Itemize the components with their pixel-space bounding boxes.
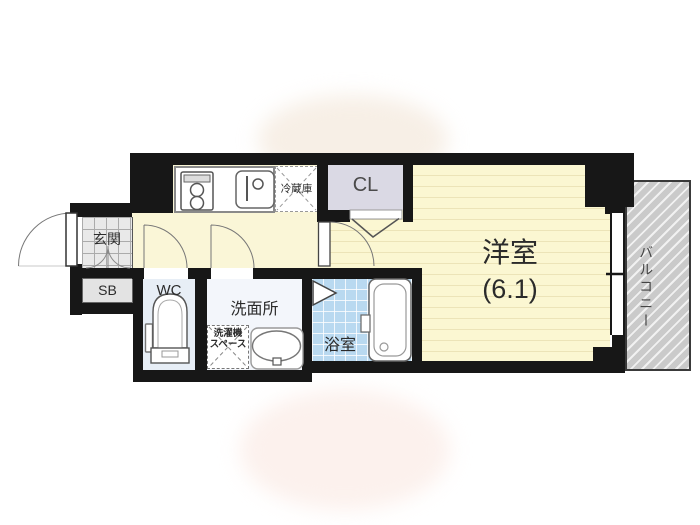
washroom-door-swing	[211, 225, 254, 268]
entrance-label: 玄関	[82, 231, 132, 247]
kitchen-sink-icon	[236, 171, 274, 208]
washer-space-label: 洗濯機 スペース	[205, 329, 251, 351]
washer-space-line2: スペース	[210, 339, 247, 350]
shoe-box-label: SB	[82, 282, 133, 298]
toilet-icon	[146, 294, 190, 363]
closet-label: CL	[328, 174, 403, 197]
bathtub-icon	[361, 279, 411, 361]
bathroom-label: 浴室	[312, 337, 368, 355]
wc-label: WC	[143, 282, 195, 299]
fixtures-overlay	[0, 0, 700, 525]
western-room-label: 洋室	[425, 237, 595, 269]
western-room-size: (6.1)	[425, 274, 595, 305]
floor-plan: 玄関 SB WC 洗面所 洗濯機 スペース 浴室 冷蔵庫 CL 洋室 (6.1)…	[0, 0, 700, 525]
stove-icon	[181, 172, 213, 210]
washbasin-icon	[251, 328, 303, 369]
closet-folding-door	[350, 210, 402, 237]
wc-door-swing	[144, 225, 187, 268]
refrigerator-label: 冷蔵庫	[275, 183, 318, 195]
bath-folding-door	[313, 281, 336, 305]
washer-space-line1: 洗濯機	[214, 328, 243, 339]
bedroom-door-swing	[319, 222, 375, 266]
washroom-label: 洗面所	[207, 301, 302, 319]
entrance-door-swing	[19, 213, 78, 266]
balcony-label: バルコニー	[638, 222, 654, 352]
